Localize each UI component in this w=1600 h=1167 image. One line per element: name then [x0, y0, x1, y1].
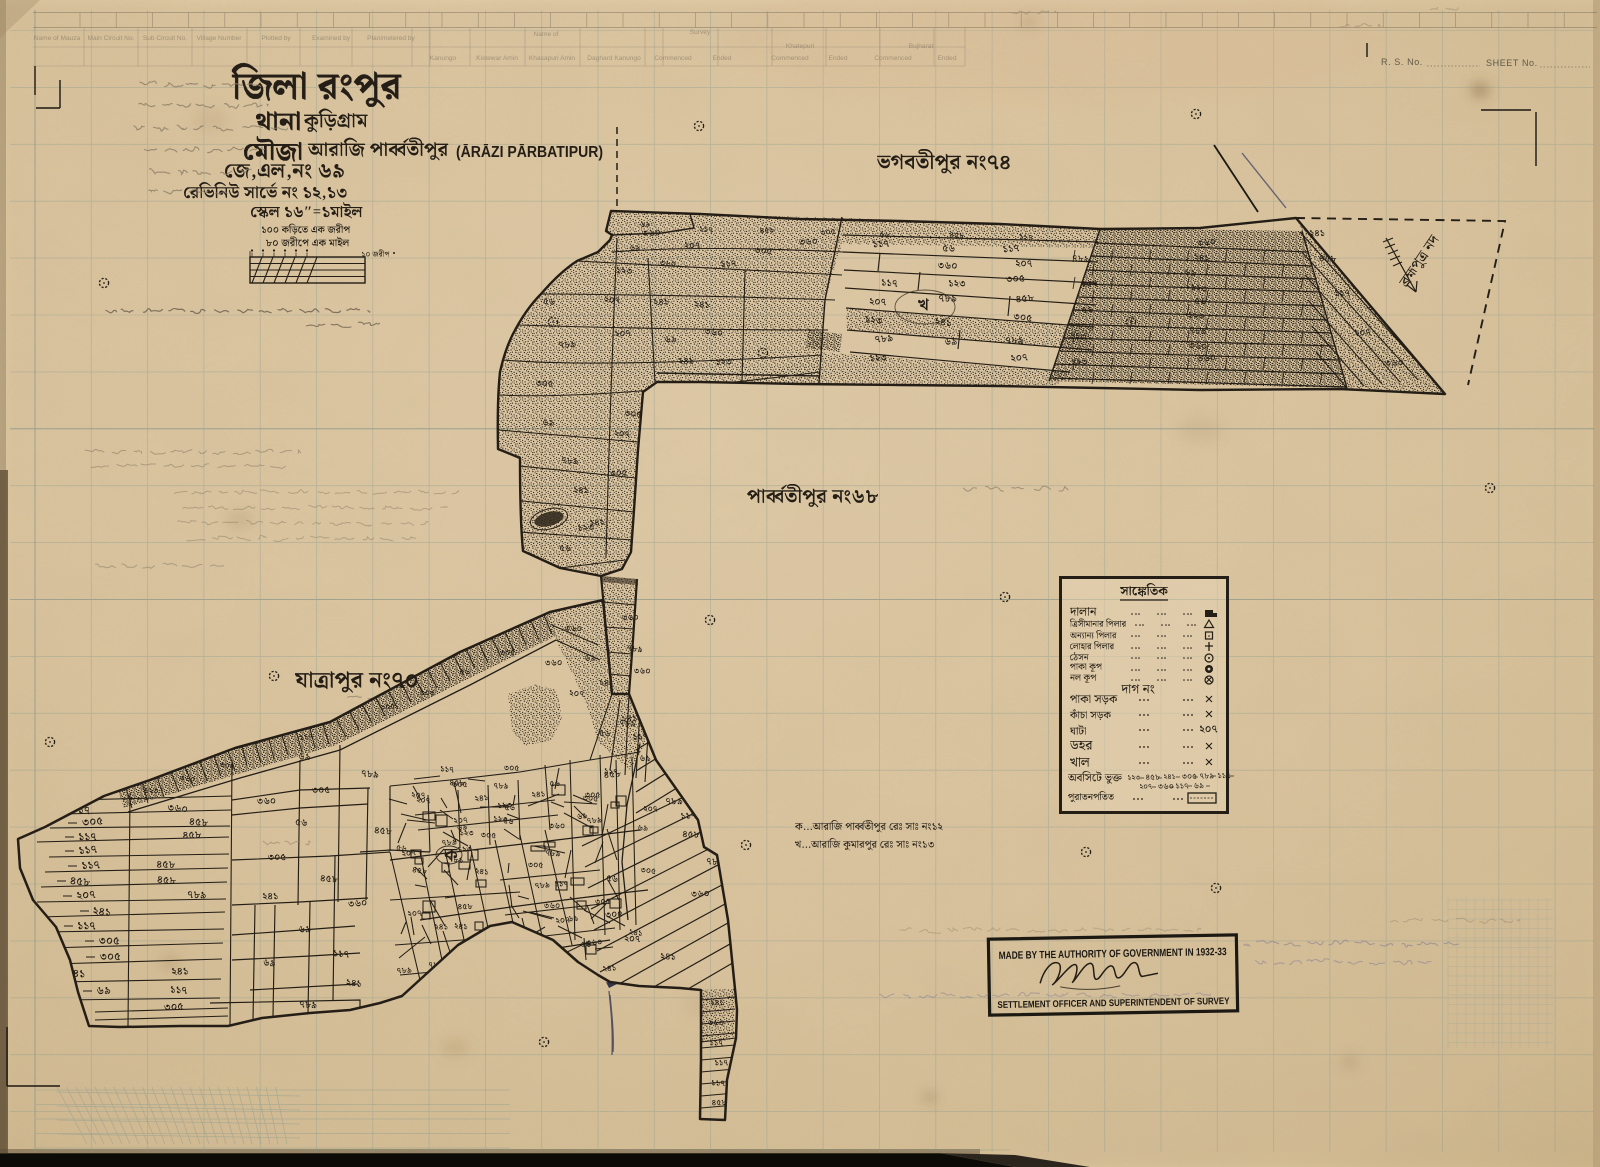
svg-text:Khatepuri: Khatepuri [786, 43, 815, 50]
svg-text:Daghard Kanungo: Daghard Kanungo [587, 55, 641, 62]
svg-text:Main Circuit No.: Main Circuit No. [88, 35, 135, 42]
svg-text:Ended: Ended [828, 55, 847, 62]
svg-text:Khasapuri Amin: Khasapuri Amin [529, 55, 576, 62]
svg-text:Name of Mauza: Name of Mauza [34, 35, 81, 42]
svg-text:SHEET No.: SHEET No. [1486, 58, 1538, 68]
svg-text:Plotted by: Plotted by [261, 35, 291, 42]
svg-text:Kistewar Amin: Kistewar Amin [476, 55, 518, 62]
svg-text:Survey: Survey [690, 29, 711, 36]
svg-text:(ĀRĀZI PĀRBATIPUR): (ĀRĀZI PĀRBATIPUR) [456, 142, 603, 161]
svg-text:Ended: Ended [712, 55, 731, 62]
svg-text:Commenced: Commenced [654, 55, 692, 62]
svg-text:Examined by: Examined by [312, 35, 351, 42]
svg-text:Bujharat: Bujharat [909, 43, 934, 50]
svg-text:Name of: Name of [534, 31, 559, 38]
svg-text:R. S. No.: R. S. No. [1381, 57, 1423, 67]
svg-text:Planimetered by: Planimetered by [367, 35, 415, 42]
svg-text:Commenced: Commenced [874, 55, 912, 62]
svg-text:Ended: Ended [937, 55, 956, 62]
svg-text:Commenced: Commenced [771, 55, 809, 62]
svg-text:Village Number: Village Number [197, 35, 243, 42]
svg-text:Kanungo: Kanungo [430, 55, 457, 62]
svg-text:Sub Circuit No.: Sub Circuit No. [143, 35, 188, 42]
